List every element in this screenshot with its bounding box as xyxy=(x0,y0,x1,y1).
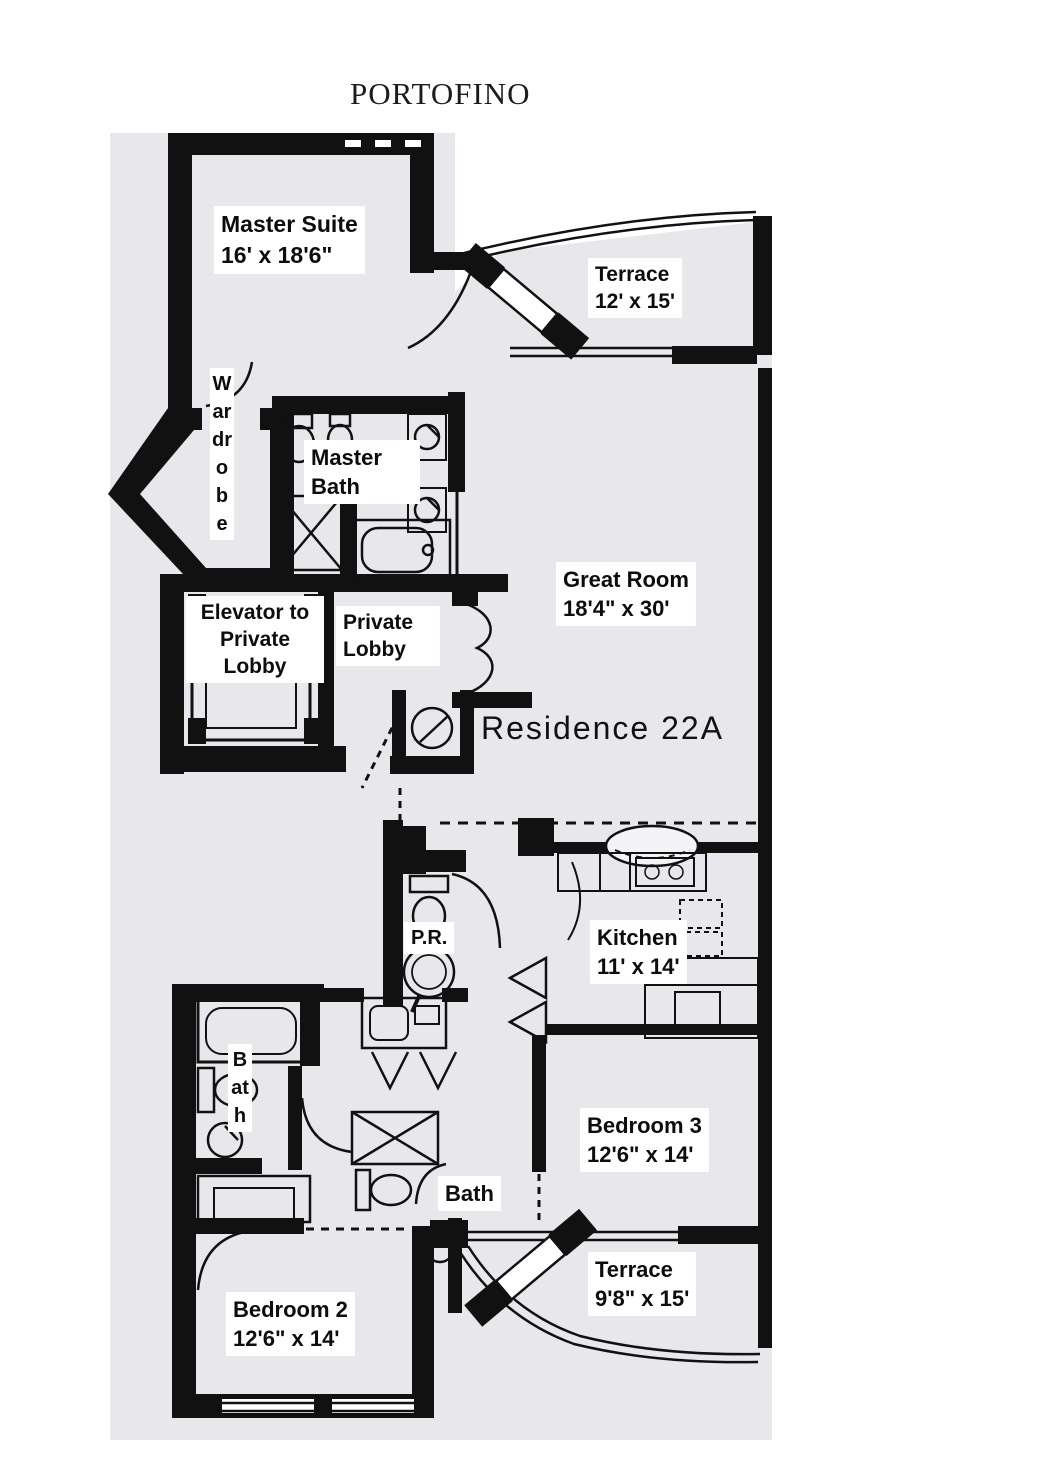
page-title: PORTOFINO xyxy=(350,76,531,112)
room-name: Terrace xyxy=(595,261,675,288)
room-label-great-room: Great Room 18'4" x 30' xyxy=(556,562,696,626)
room-name: Bedroom 2 xyxy=(233,1295,348,1324)
room-dims: 16' x 18'6" xyxy=(221,240,358,271)
room-name: Kitchen xyxy=(597,923,680,952)
room-dims: 12'6" x 14' xyxy=(587,1140,702,1169)
room-label-wardrobe: Wardrobe xyxy=(210,368,234,540)
room-dims: 12'6" x 14' xyxy=(233,1324,348,1353)
room-dims: 11' x 14' xyxy=(597,952,680,981)
room-label-bath-left: Bath xyxy=(228,1044,252,1132)
room-label-private-lobby: Private Lobby xyxy=(336,606,440,666)
room-label-bedroom-3: Bedroom 3 12'6" x 14' xyxy=(580,1108,709,1172)
room-dims: 12' x 15' xyxy=(595,288,675,315)
room-name: Master Suite xyxy=(221,209,358,240)
room-label-terrace-bottom: Terrace 9'8" x 15' xyxy=(588,1252,696,1316)
room-dims: 18'4" x 30' xyxy=(563,594,689,623)
room-label-powder-room: P.R. xyxy=(404,922,454,954)
room-name: Terrace xyxy=(595,1255,689,1284)
room-label-terrace-top: Terrace 12' x 15' xyxy=(588,258,682,318)
room-label-bath-center: Bath xyxy=(438,1176,501,1211)
room-label-bedroom-2: Bedroom 2 12'6" x 14' xyxy=(226,1292,355,1356)
room-name: Bedroom 3 xyxy=(587,1111,702,1140)
room-name: Great Room xyxy=(563,565,689,594)
room-label-elevator: Elevator to Private Lobby xyxy=(186,596,324,683)
kitchen-sink-icon xyxy=(606,826,698,866)
residence-label: Residence 22A xyxy=(481,710,724,747)
room-label-master-suite: Master Suite 16' x 18'6" xyxy=(214,206,365,274)
room-label-master-bath: Master Bath xyxy=(304,440,420,504)
room-dims: 9'8" x 15' xyxy=(595,1284,689,1313)
floorplan-page: PORTOFINO Master Suite 16' x 18'6" Terra… xyxy=(0,0,1049,1476)
room-label-kitchen: Kitchen 11' x 14' xyxy=(590,920,687,984)
